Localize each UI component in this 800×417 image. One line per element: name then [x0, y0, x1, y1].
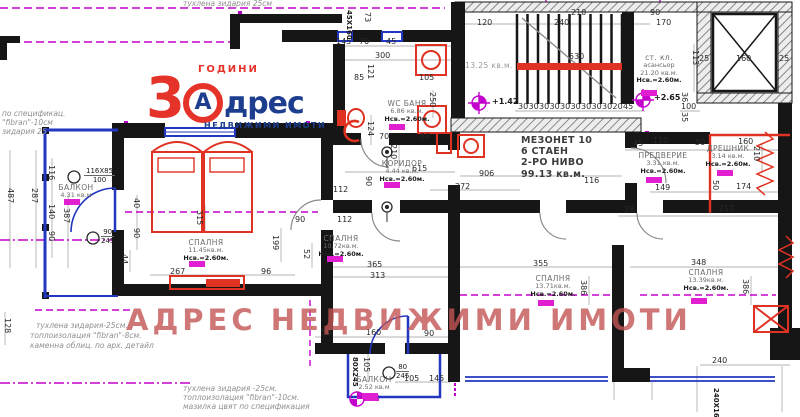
toilet-bowl [348, 109, 364, 127]
insulation-zigzag [757, 132, 773, 195]
staircase [517, 14, 622, 104]
windows-layer [45, 32, 775, 397]
floorplan-drawing [0, 0, 800, 417]
floorplan-page: ГОДИНИ 3 А дрес НЕДВИЖИМИ ИМОТИ АДРЕС НЕ… [0, 0, 800, 417]
elevator-shaft [713, 14, 776, 91]
bed-right [204, 152, 252, 232]
stair-landing-bar [517, 63, 622, 70]
toilet-tank [337, 110, 346, 126]
benchmark-icon [468, 92, 490, 114]
benchmark-icon [632, 89, 654, 111]
dimension-lines-gray [5, 24, 792, 412]
bed-headboard-arc [152, 142, 202, 152]
bed-headboard-arc [204, 142, 252, 152]
balcony-door-arc [71, 188, 115, 232]
benchmark-icon [350, 392, 364, 406]
